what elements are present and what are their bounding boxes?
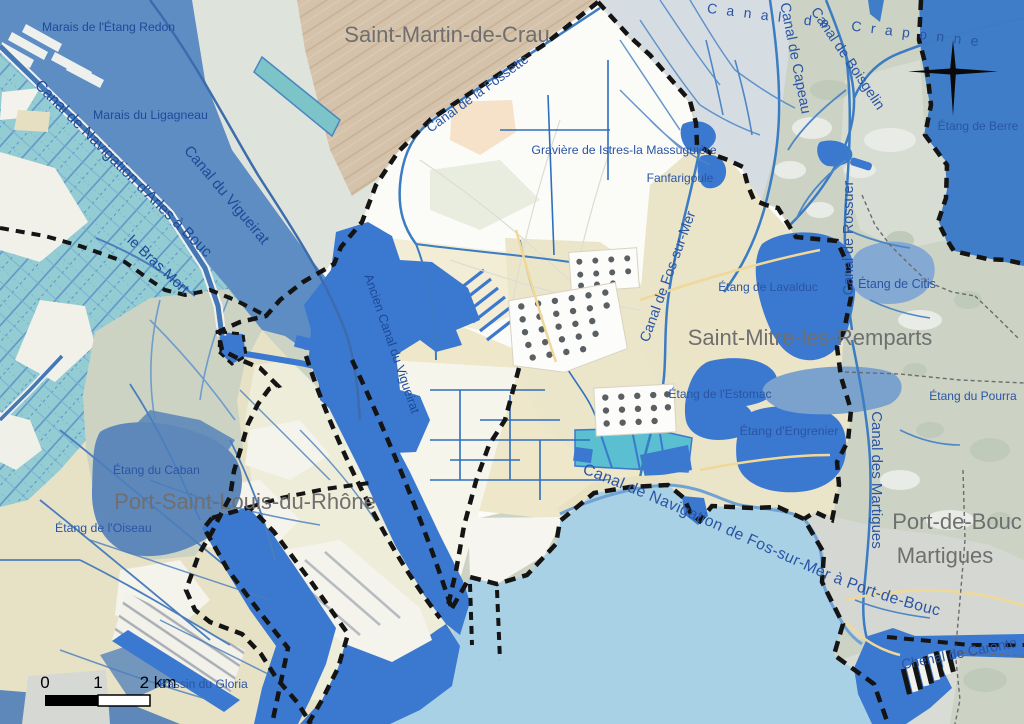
svg-text:Canal de Rossuer: Canal de Rossuer	[841, 181, 857, 296]
svg-text:Marais du Ligagneau: Marais du Ligagneau	[93, 108, 208, 122]
svg-text:Étang de l'Oiseau: Étang de l'Oiseau	[55, 520, 152, 535]
svg-text:Étang du Pourra: Étang du Pourra	[929, 388, 1017, 403]
svg-text:Étang du Caban: Étang du Caban	[113, 462, 200, 477]
svg-text:0: 0	[40, 673, 49, 692]
svg-text:Gravière de Istres-la Massugui: Gravière de Istres-la Massuguière	[531, 143, 716, 157]
svg-text:Étang de Lavalduc: Étang de Lavalduc	[718, 279, 817, 294]
svg-text:Saint-Mitre-les-Remparts: Saint-Mitre-les-Remparts	[688, 325, 933, 350]
svg-text:Port-Saint-Louis-du-Rhône: Port-Saint-Louis-du-Rhône	[114, 489, 376, 514]
svg-text:Étang de Citis: Étang de Citis	[858, 276, 936, 291]
svg-text:Canal des Martigues: Canal des Martigues	[868, 411, 885, 549]
svg-text:Marais de l'Étang Redon: Marais de l'Étang Redon	[42, 19, 175, 34]
svg-text:1: 1	[93, 673, 102, 692]
svg-text:Saint-Martin-de-Crau: Saint-Martin-de-Crau	[344, 22, 549, 47]
svg-text:Fanfarigoule: Fanfarigoule	[647, 171, 714, 185]
svg-text:Martigues: Martigues	[897, 543, 994, 568]
svg-text:Bassin du Gloria: Bassin du Gloria	[159, 677, 248, 691]
svg-text:Port-de-Bouc: Port-de-Bouc	[892, 509, 1022, 534]
svg-text:Étang de Berre: Étang de Berre	[938, 118, 1019, 133]
svg-text:Étang de l'Estomac: Étang de l'Estomac	[668, 386, 771, 401]
svg-text:Étang d'Engrenier: Étang d'Engrenier	[740, 423, 839, 438]
